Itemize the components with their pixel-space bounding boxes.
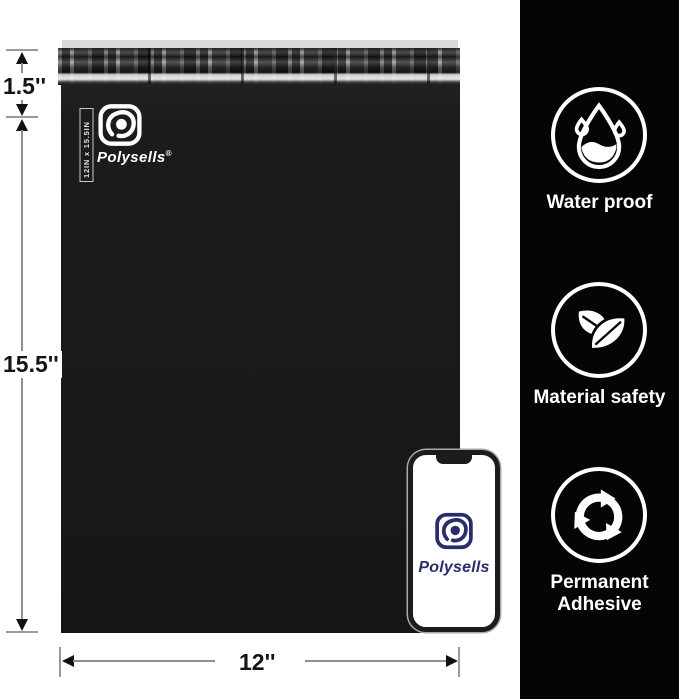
material-safety-badge	[551, 282, 647, 378]
width-dim-right-tick	[458, 647, 460, 677]
width-dim-arrow-right-icon	[446, 655, 458, 667]
registered-mark: ®	[166, 149, 172, 158]
flap-dim-bottom-tick	[6, 116, 38, 118]
permanent-adhesive-label: Permanent Adhesive	[520, 572, 679, 616]
width-dim-stem-right	[305, 660, 447, 662]
bag-brand-text: Polysells®	[97, 149, 172, 166]
phone-mockup: Polysells	[408, 450, 500, 632]
height-dim-arrow-down-icon	[16, 619, 28, 631]
bag-adhesive-seal-strip	[58, 48, 460, 85]
width-dim-left-tick	[59, 647, 61, 677]
flap-dim-arrow-down-icon	[16, 104, 28, 116]
water-proof-label: Water proof	[520, 192, 679, 214]
phone-brand-text: Polysells	[418, 559, 489, 577]
phone-polysells-logo-icon	[434, 511, 474, 556]
features-sidebar: Water proof Material safety	[520, 0, 679, 699]
flap-dim-top-tick	[6, 49, 38, 51]
bag-body: 12IN x 15.5IN Polysells®	[61, 84, 460, 633]
width-dim-stem-left	[73, 660, 215, 662]
poly-mailer-bag: 12IN x 15.5IN Polysells®	[58, 40, 460, 633]
flap-height-label: 1.5''	[0, 73, 49, 100]
height-dim-bottom-tick	[6, 631, 38, 633]
polysells-logo-icon	[97, 101, 143, 154]
water-proof-badge	[551, 87, 647, 183]
recycle-icon	[555, 471, 643, 559]
phone-screen: Polysells	[413, 455, 495, 627]
water-drop-icon	[555, 91, 643, 179]
material-safety-label: Material safety	[520, 387, 679, 409]
bag-brand-name: Polysells	[97, 149, 166, 166]
bag-size-tag: 12IN x 15.5IN	[80, 108, 94, 182]
bag-width-label: 12''	[236, 649, 279, 676]
product-feature-image: 12IN x 15.5IN Polysells® 1.5'' 15.5''	[0, 0, 679, 699]
bag-printed-branding: 12IN x 15.5IN Polysells®	[80, 106, 200, 186]
permanent-adhesive-badge	[551, 467, 647, 563]
bag-height-label: 15.5''	[0, 351, 62, 378]
leaves-icon	[555, 286, 643, 374]
